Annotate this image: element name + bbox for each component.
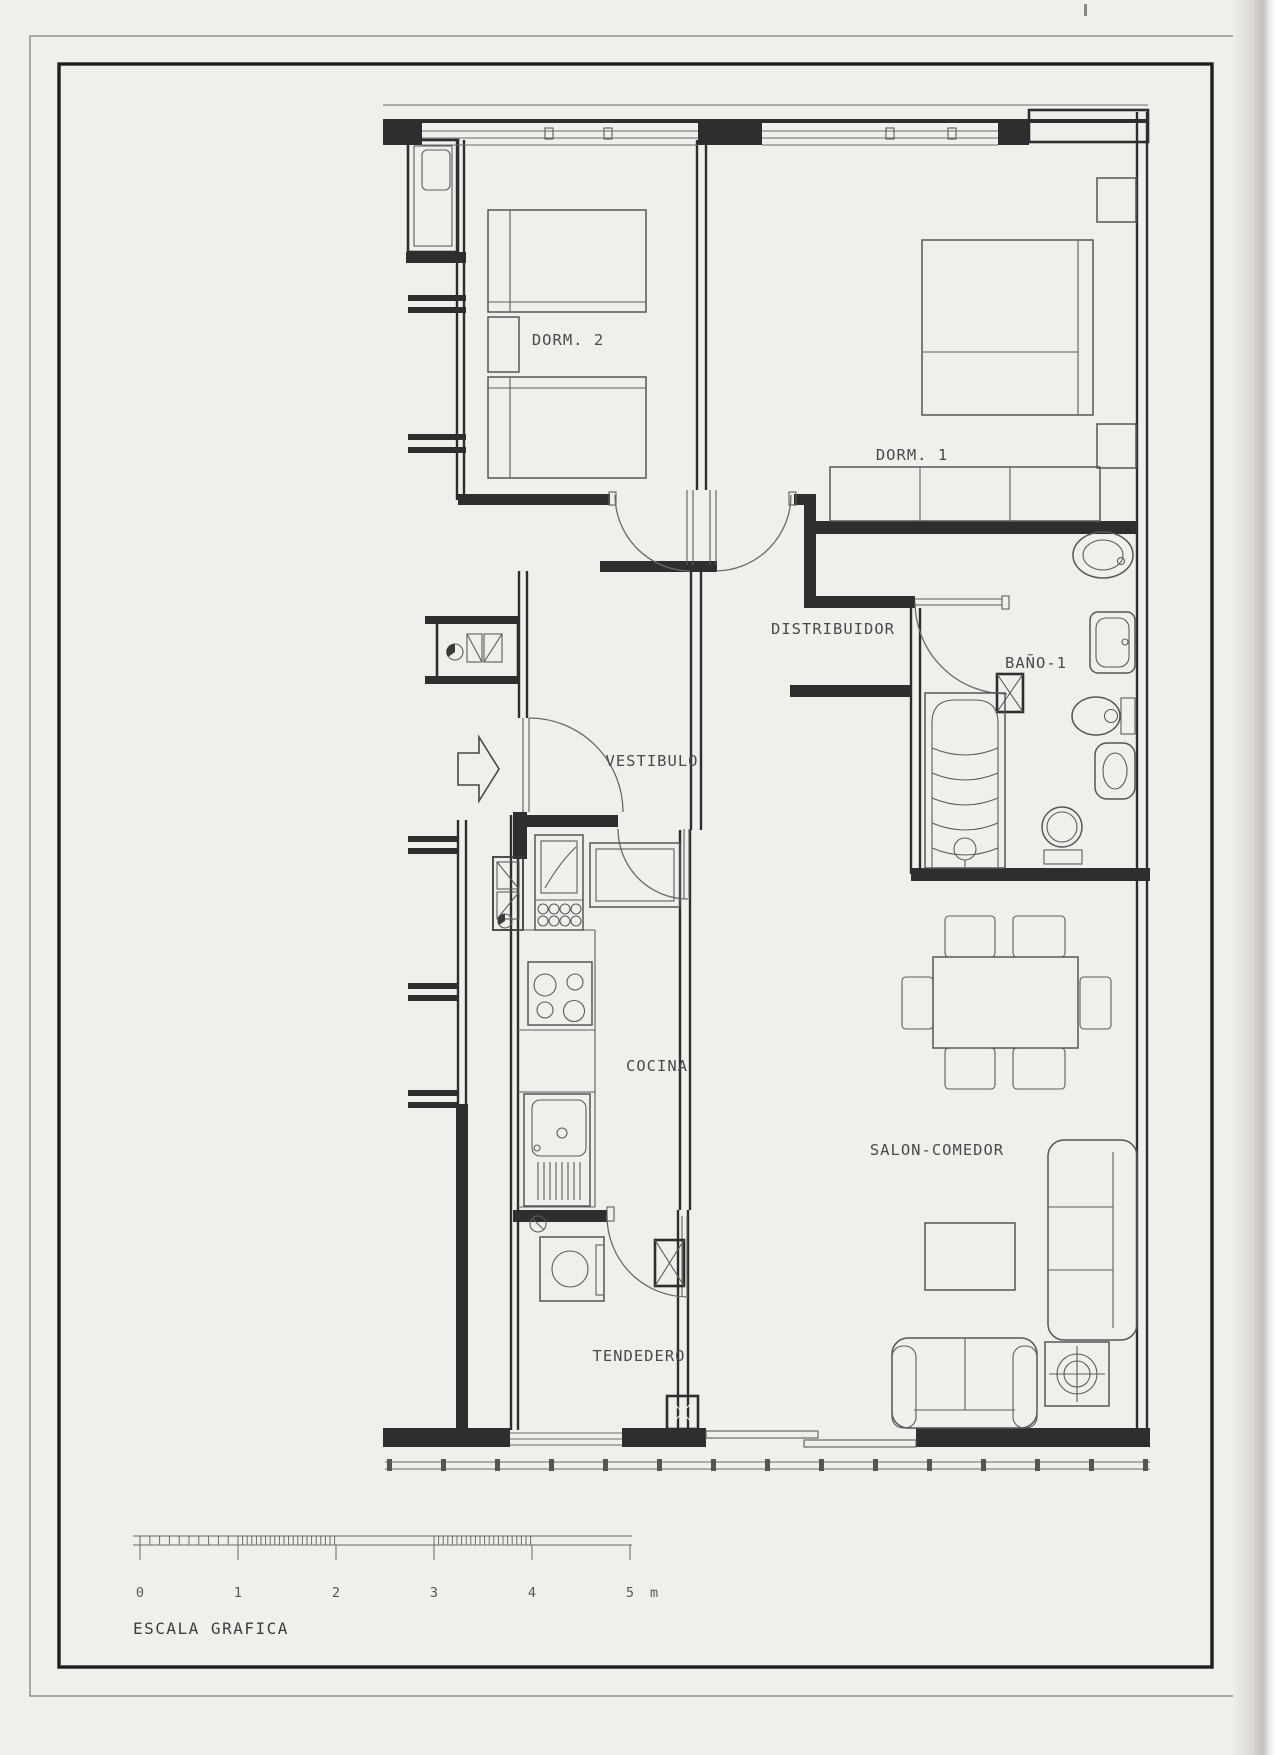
chair — [945, 1048, 995, 1089]
vestibule-north-wall — [600, 561, 717, 572]
living-room-furniture — [892, 916, 1137, 1428]
dorm2-door-arc — [615, 495, 690, 571]
bottom-exterior-wall — [383, 1428, 510, 1447]
scale-title: ESCALA GRAFICA — [133, 1619, 289, 1638]
room-label-tendedero: TENDEDERO — [593, 1347, 686, 1365]
floor-plan-drawing: DORM. 2 DORM. 1 DISTRIBUIDOR BAÑO-1 VEST… — [0, 0, 1275, 1755]
dorm1-furniture — [830, 178, 1136, 521]
double-bed — [922, 240, 1093, 415]
terrace-railing — [385, 1459, 1150, 1471]
top-right-wall-stub — [1029, 110, 1148, 142]
room-label-cocina: COCINA — [626, 1057, 688, 1075]
scanned-floor-plan-page: DORM. 2 DORM. 1 DISTRIBUIDOR BAÑO-1 VEST… — [0, 0, 1275, 1755]
drying-room-fixtures — [540, 1237, 604, 1301]
kitchen-door-arc — [618, 829, 688, 899]
scale-unit: m — [650, 1585, 658, 1601]
room-label-distribuidor: DISTRIBUIDOR — [771, 620, 895, 638]
scale-tick-5: 5 — [626, 1585, 634, 1601]
bathroom-south-wall — [911, 868, 1150, 881]
room-label-dorm1: DORM. 1 — [876, 446, 948, 464]
chair — [902, 977, 933, 1029]
bathroom-fixtures — [925, 532, 1135, 868]
kitchen-north-wall — [513, 815, 618, 827]
scale-bar: 0 1 2 3 4 5 m ESCALA GRAFICA — [133, 1536, 658, 1638]
washing-machine — [540, 1237, 604, 1301]
room-label-bano1: BAÑO-1 — [1005, 653, 1067, 672]
room-labels: DORM. 2 DORM. 1 DISTRIBUIDOR BAÑO-1 VEST… — [532, 331, 1067, 1365]
scale-tick-0: 0 — [136, 1585, 144, 1601]
scan-edge-shadow — [1233, 0, 1275, 1755]
room-label-dorm2: DORM. 2 — [532, 331, 604, 349]
registration-mark — [1084, 4, 1087, 16]
kitchen-fixtures — [518, 835, 680, 1232]
scale-numbers: 0 1 2 3 4 5 m — [136, 1585, 658, 1601]
hall-south-wall — [790, 685, 911, 697]
wardrobe — [830, 467, 1100, 521]
toilet — [1072, 697, 1120, 735]
scale-tick-3: 3 — [430, 1585, 438, 1601]
drying-room-north-wall — [513, 1210, 607, 1222]
scale-tick-1: 1 — [234, 1585, 242, 1601]
bathroom-door-arc — [915, 602, 1007, 694]
chair — [945, 916, 995, 957]
washbasin — [1073, 532, 1133, 578]
scale-tick-4: 4 — [528, 1585, 536, 1601]
single-bed-1 — [488, 210, 646, 312]
entrance-arrow-icon — [458, 737, 499, 801]
bathtub-faucet — [954, 838, 976, 860]
nightstand — [488, 317, 519, 372]
chair — [1013, 1048, 1065, 1089]
bathroom-north-wall — [816, 596, 915, 608]
water-heater — [1042, 807, 1082, 847]
dorm1-south-wall — [816, 521, 1136, 534]
chair — [1013, 916, 1065, 957]
single-bed-2 — [488, 377, 646, 478]
scale-tick-2: 2 — [332, 1585, 340, 1601]
dorm1-door-arc — [716, 495, 791, 571]
dining-table — [933, 957, 1078, 1048]
dorm2-south-wall — [458, 494, 610, 505]
sofa-3-seat — [1048, 1140, 1137, 1340]
terrace-slider-leaf — [706, 1431, 818, 1438]
room-label-vestibulo: VESTIBULO — [606, 752, 699, 770]
chair — [1080, 977, 1111, 1029]
walls — [383, 105, 1150, 1447]
bidet — [1095, 743, 1135, 799]
nightstand — [1097, 178, 1136, 222]
page-frame-inner — [59, 64, 1212, 1667]
coffee-table — [925, 1223, 1015, 1290]
room-label-salon: SALON-COMEDOR — [870, 1141, 1004, 1159]
nightstand — [1097, 424, 1136, 468]
